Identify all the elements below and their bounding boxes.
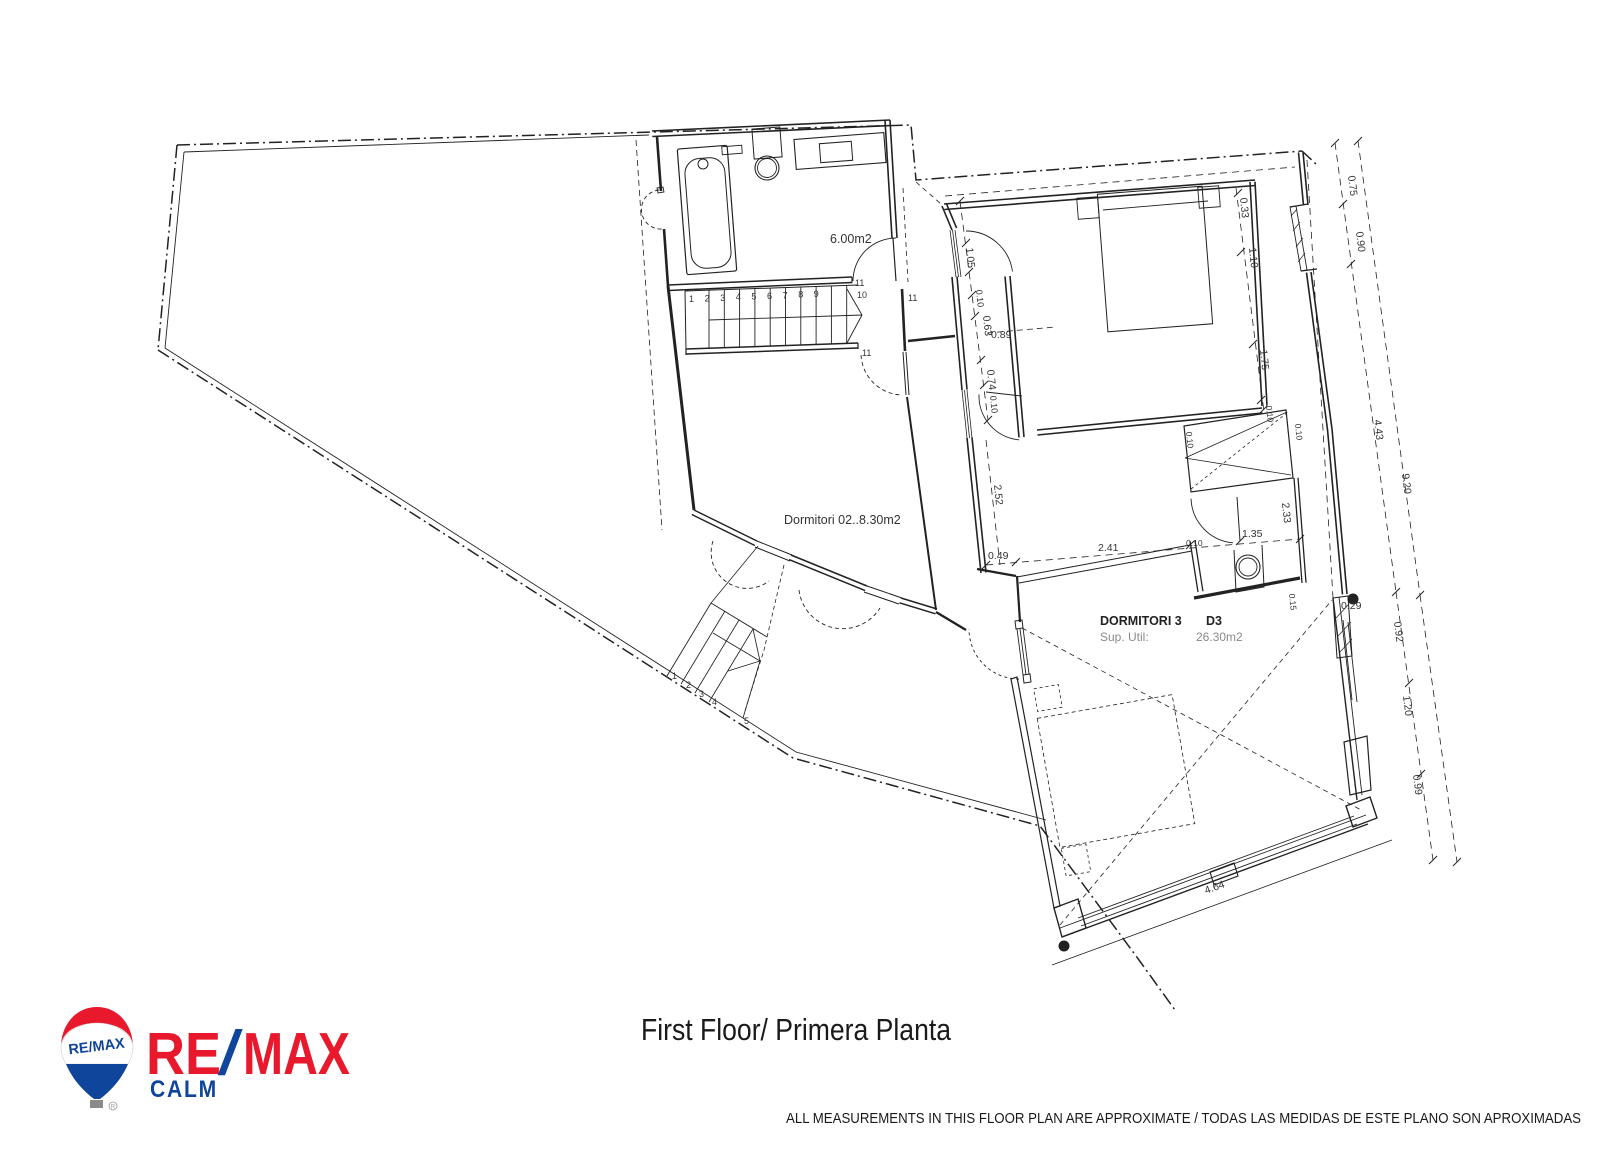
svg-text:26.30m2: 26.30m2 — [1196, 630, 1243, 644]
svg-text:D3: D3 — [1206, 614, 1222, 628]
svg-text:5: 5 — [751, 292, 756, 302]
svg-text:11: 11 — [908, 293, 917, 303]
svg-text:6: 6 — [767, 291, 772, 301]
svg-text:2.52: 2.52 — [991, 484, 1005, 506]
svg-text:10: 10 — [857, 290, 867, 300]
svg-text:2.41: 2.41 — [1098, 542, 1119, 554]
svg-text:2: 2 — [705, 293, 710, 303]
svg-text:8: 8 — [798, 290, 803, 300]
svg-text:0.10: 0.10 — [1293, 423, 1305, 441]
svg-text:Sup. Util:: Sup. Util: — [1100, 630, 1149, 644]
svg-text:First Floor/ Primera Planta: First Floor/ Primera Planta — [641, 1013, 951, 1047]
svg-text:CALM: CALM — [150, 1076, 218, 1103]
svg-text:1.75: 1.75 — [1257, 349, 1271, 371]
svg-text:7: 7 — [783, 290, 788, 300]
svg-text:0.90: 0.90 — [1353, 231, 1367, 253]
svg-text:R: R — [111, 1105, 116, 1111]
svg-text:3: 3 — [720, 293, 725, 303]
svg-text:DORMITORI 3: DORMITORI 3 — [1100, 614, 1182, 628]
svg-text:11: 11 — [855, 278, 864, 288]
svg-text:0.10: 0.10 — [1184, 431, 1196, 449]
svg-text:11: 11 — [862, 348, 871, 358]
svg-text:9.20: 9.20 — [1399, 473, 1413, 495]
svg-text:0.29: 0.29 — [1341, 600, 1362, 612]
svg-text:9: 9 — [814, 289, 819, 299]
svg-text:1.35: 1.35 — [1242, 528, 1263, 540]
svg-text:0.33: 0.33 — [1237, 197, 1251, 219]
svg-text:4.43: 4.43 — [1371, 419, 1385, 441]
svg-text:4: 4 — [736, 292, 741, 302]
svg-text:Dormitori 02..8.30m2: Dormitori 02..8.30m2 — [784, 513, 901, 527]
svg-text:2.33: 2.33 — [1279, 502, 1293, 524]
svg-text:ALL MEASUREMENTS IN THIS FLOOR: ALL MEASUREMENTS IN THIS FLOOR PLAN ARE … — [786, 1111, 1581, 1127]
svg-text:5: 5 — [744, 716, 749, 726]
svg-text:1.05: 1.05 — [963, 247, 977, 269]
svg-text:MAX: MAX — [243, 1021, 350, 1087]
svg-text:1: 1 — [672, 671, 677, 681]
svg-text:3: 3 — [699, 689, 704, 699]
svg-text:1.20: 1.20 — [1400, 695, 1414, 717]
svg-text:2: 2 — [686, 680, 691, 690]
svg-text:6.00m2: 6.00m2 — [830, 232, 872, 246]
svg-text:0.10: 0.10 — [988, 395, 1000, 413]
svg-text:4: 4 — [712, 697, 717, 707]
svg-text:1.10: 1.10 — [1246, 247, 1260, 269]
svg-text:0.74: 0.74 — [984, 369, 998, 391]
svg-text:1: 1 — [689, 294, 694, 304]
svg-text:0.89: 0.89 — [991, 329, 1012, 341]
svg-text:0.75: 0.75 — [1345, 175, 1359, 197]
svg-text:0.15: 0.15 — [1287, 593, 1299, 611]
svg-text:0.10: 0.10 — [974, 289, 986, 307]
svg-text:0.92: 0.92 — [1391, 621, 1405, 643]
